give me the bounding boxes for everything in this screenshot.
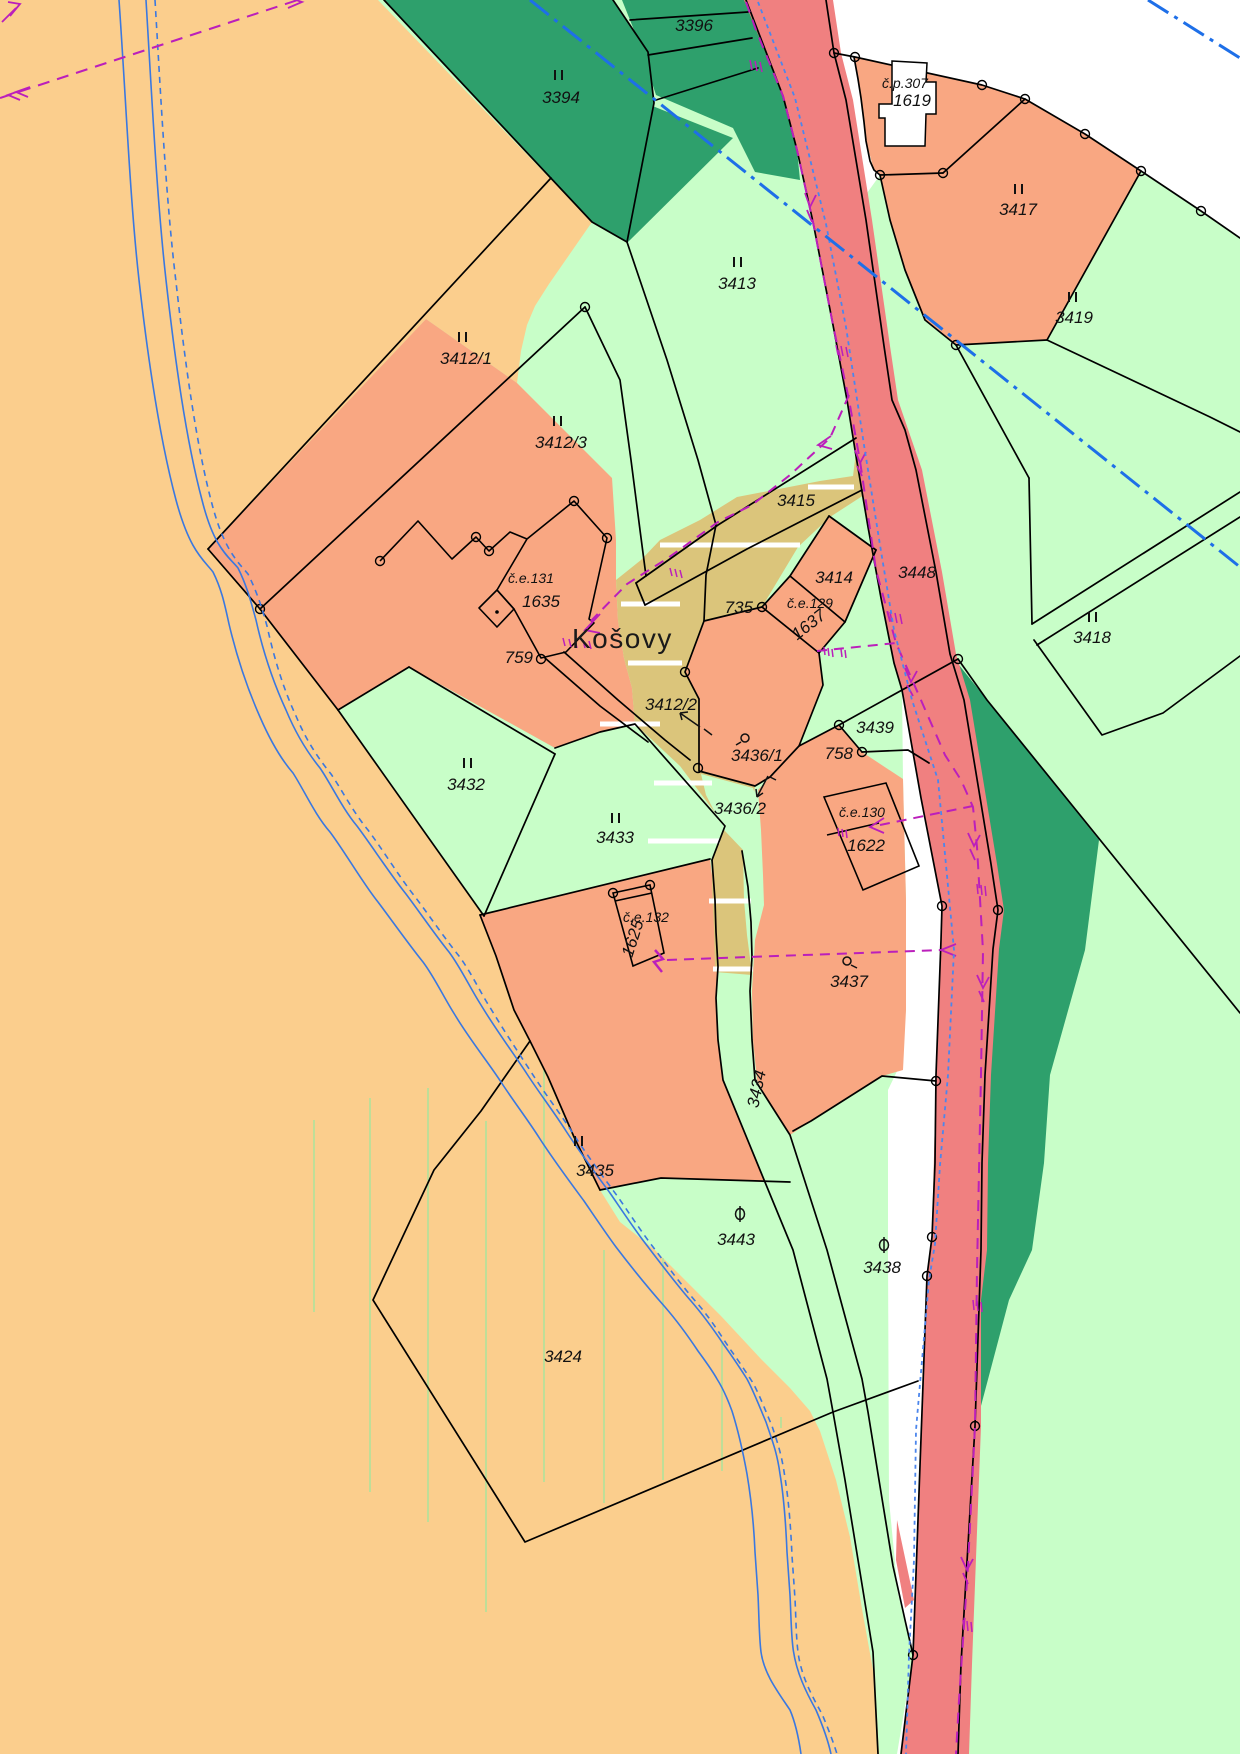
svg-text:č.e.129: č.e.129 <box>787 595 833 611</box>
svg-text:3394: 3394 <box>542 88 580 107</box>
svg-text:č.p.307: č.p.307 <box>882 75 929 91</box>
svg-text:3424: 3424 <box>544 1347 582 1366</box>
svg-text:3417: 3417 <box>999 200 1037 219</box>
svg-text:1619: 1619 <box>893 91 931 110</box>
svg-text:3419: 3419 <box>1055 308 1093 327</box>
svg-text:3432: 3432 <box>447 775 485 794</box>
svg-text:3414: 3414 <box>815 568 853 587</box>
svg-text:735: 735 <box>725 598 754 617</box>
svg-text:3412/1: 3412/1 <box>440 349 492 368</box>
svg-text:3439: 3439 <box>856 718 894 737</box>
svg-text:758: 758 <box>825 744 854 763</box>
svg-text:3396: 3396 <box>675 16 713 35</box>
svg-text:3448: 3448 <box>898 563 936 582</box>
svg-text:3438: 3438 <box>863 1258 901 1277</box>
svg-text:1622: 1622 <box>847 836 885 855</box>
svg-text:1635: 1635 <box>522 592 560 611</box>
svg-text:3412/3: 3412/3 <box>535 433 588 452</box>
svg-text:3435: 3435 <box>576 1161 614 1180</box>
svg-text:3433: 3433 <box>596 828 634 847</box>
svg-text:759: 759 <box>505 648 534 667</box>
svg-text:3436/2: 3436/2 <box>714 799 767 818</box>
svg-text:3413: 3413 <box>718 274 756 293</box>
svg-text:Košovy: Košovy <box>572 623 673 654</box>
svg-text:č.e.130: č.e.130 <box>839 804 885 820</box>
svg-text:3443: 3443 <box>717 1230 755 1249</box>
svg-text:3412/2: 3412/2 <box>645 695 698 714</box>
svg-text:3418: 3418 <box>1073 628 1111 647</box>
svg-text:3436/1: 3436/1 <box>731 746 783 765</box>
svg-text:3415: 3415 <box>777 491 815 510</box>
svg-text:č.e.131: č.e.131 <box>508 570 554 586</box>
svg-text:3437: 3437 <box>830 972 868 991</box>
